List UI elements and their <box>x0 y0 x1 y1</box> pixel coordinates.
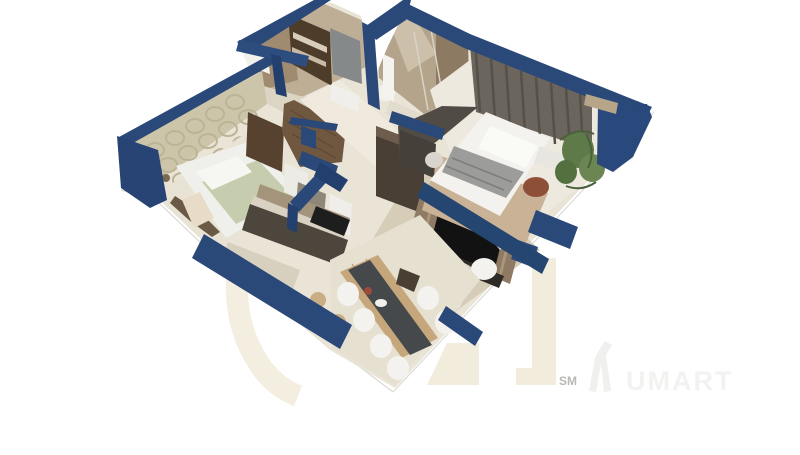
svg-text:UMART: UMART <box>626 366 733 396</box>
svg-text:SM: SM <box>559 374 577 388</box>
